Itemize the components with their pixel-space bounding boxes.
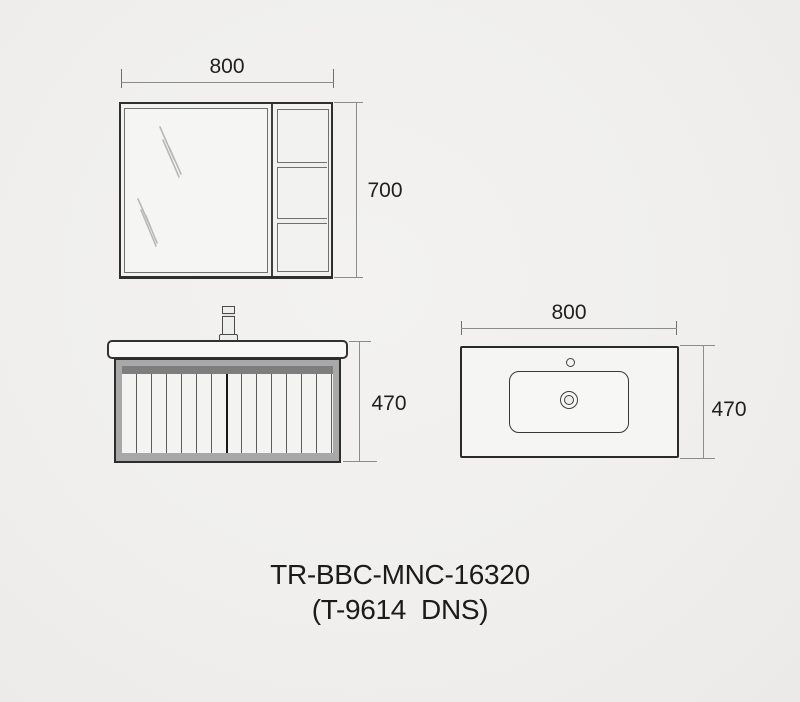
- dim-line-basin-width: [461, 328, 677, 329]
- dim-line-basin-depth: [703, 345, 704, 459]
- model-number: TR-BBC-MNC-16320: [0, 559, 800, 591]
- drain-inner-ring: [564, 395, 574, 405]
- dim-extension: [349, 341, 371, 342]
- dim-extension: [343, 461, 377, 462]
- vanity-cabinet-outline: [114, 358, 341, 463]
- basin-width-label: 800: [534, 301, 604, 324]
- dim-line-mirror-height: [356, 102, 357, 278]
- basin-bowl: [509, 371, 629, 433]
- basin-counter-outline: [460, 346, 679, 458]
- dim-extension: [680, 345, 715, 346]
- vanity-height-label: 470: [364, 392, 414, 415]
- basin-depth-label: 470: [705, 398, 753, 421]
- technical-drawing-sheet: 800 700: [0, 0, 800, 702]
- faucet-band: [222, 313, 235, 317]
- dim-extension: [334, 277, 363, 278]
- dim-extension: [680, 458, 715, 459]
- faucet-hole: [566, 358, 575, 367]
- fluted-door-panel: [122, 374, 333, 453]
- mirror-height-label: 700: [361, 179, 409, 202]
- model-variant: (T-9614 DNS): [0, 594, 800, 626]
- vanity-counter-top: [107, 340, 348, 359]
- door-center-seam: [226, 374, 228, 453]
- dim-line-vanity-height: [359, 341, 360, 462]
- cabinet-top-rail: [122, 366, 333, 374]
- dim-extension: [334, 102, 363, 103]
